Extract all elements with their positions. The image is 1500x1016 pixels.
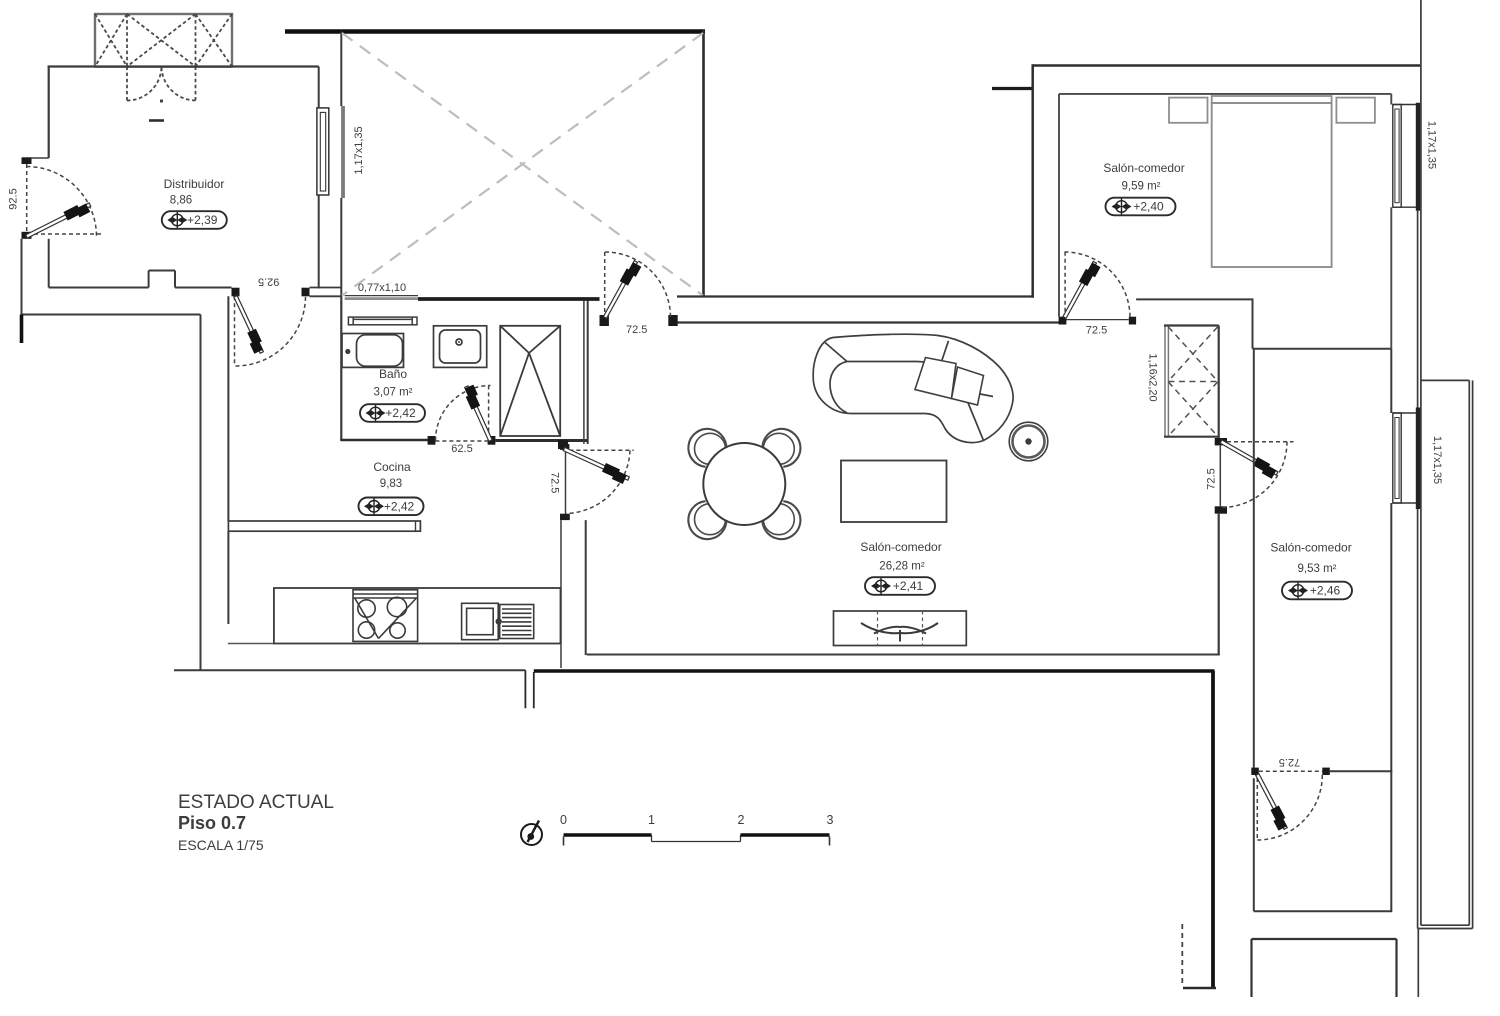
- svg-text:Salón-comedor: Salón-comedor: [860, 540, 941, 554]
- svg-text:2: 2: [738, 813, 745, 827]
- svg-text:1: 1: [648, 813, 655, 827]
- svg-text:Salón-comedor: Salón-comedor: [1270, 541, 1351, 555]
- svg-text:Baño: Baño: [379, 367, 407, 381]
- svg-text:8,86: 8,86: [170, 195, 192, 207]
- svg-text:+2,40: +2,40: [1133, 200, 1164, 214]
- svg-text:ESTADO ACTUAL: ESTADO ACTUAL: [178, 792, 334, 813]
- svg-text:72.5: 72.5: [626, 324, 647, 336]
- svg-text:+2,41: +2,41: [893, 579, 924, 593]
- svg-text:1,16x2,20: 1,16x2,20: [1147, 353, 1159, 401]
- svg-text:+2,42: +2,42: [384, 500, 415, 514]
- svg-text:72.5: 72.5: [1279, 756, 1300, 768]
- svg-text:3,07 m²: 3,07 m²: [374, 387, 413, 399]
- svg-text:62.5: 62.5: [451, 443, 472, 455]
- svg-text:72.5: 72.5: [1206, 468, 1218, 489]
- svg-text:ESCALA 1/75: ESCALA 1/75: [178, 837, 264, 853]
- svg-text:3: 3: [827, 813, 834, 827]
- svg-text:+2,42: +2,42: [385, 406, 416, 420]
- svg-text:Piso 0.7: Piso 0.7: [178, 813, 246, 833]
- svg-text:9,83: 9,83: [380, 478, 402, 490]
- svg-text:72.5: 72.5: [1086, 325, 1107, 337]
- svg-text:1,17x1,35: 1,17x1,35: [1426, 121, 1438, 169]
- svg-text:92.5: 92.5: [258, 275, 279, 287]
- svg-text:72.5: 72.5: [549, 472, 561, 493]
- svg-text:+2,46: +2,46: [1310, 584, 1341, 598]
- svg-text:Salón-comedor: Salón-comedor: [1103, 161, 1184, 175]
- svg-text:Distribuidor: Distribuidor: [164, 177, 225, 191]
- svg-text:9,53 m²: 9,53 m²: [1298, 563, 1337, 575]
- svg-text:1,17x1,35: 1,17x1,35: [1431, 436, 1443, 484]
- svg-text:0,77x1,10: 0,77x1,10: [358, 282, 406, 294]
- svg-text:0: 0: [560, 813, 567, 827]
- svg-text:26,28 m²: 26,28 m²: [879, 561, 925, 573]
- svg-text:+2,39: +2,39: [187, 213, 218, 227]
- svg-text:Cocina: Cocina: [373, 460, 411, 474]
- svg-text:9,59 m²: 9,59 m²: [1122, 181, 1161, 193]
- svg-text:92.5: 92.5: [8, 188, 20, 209]
- svg-text:1,17x1,35: 1,17x1,35: [353, 126, 365, 174]
